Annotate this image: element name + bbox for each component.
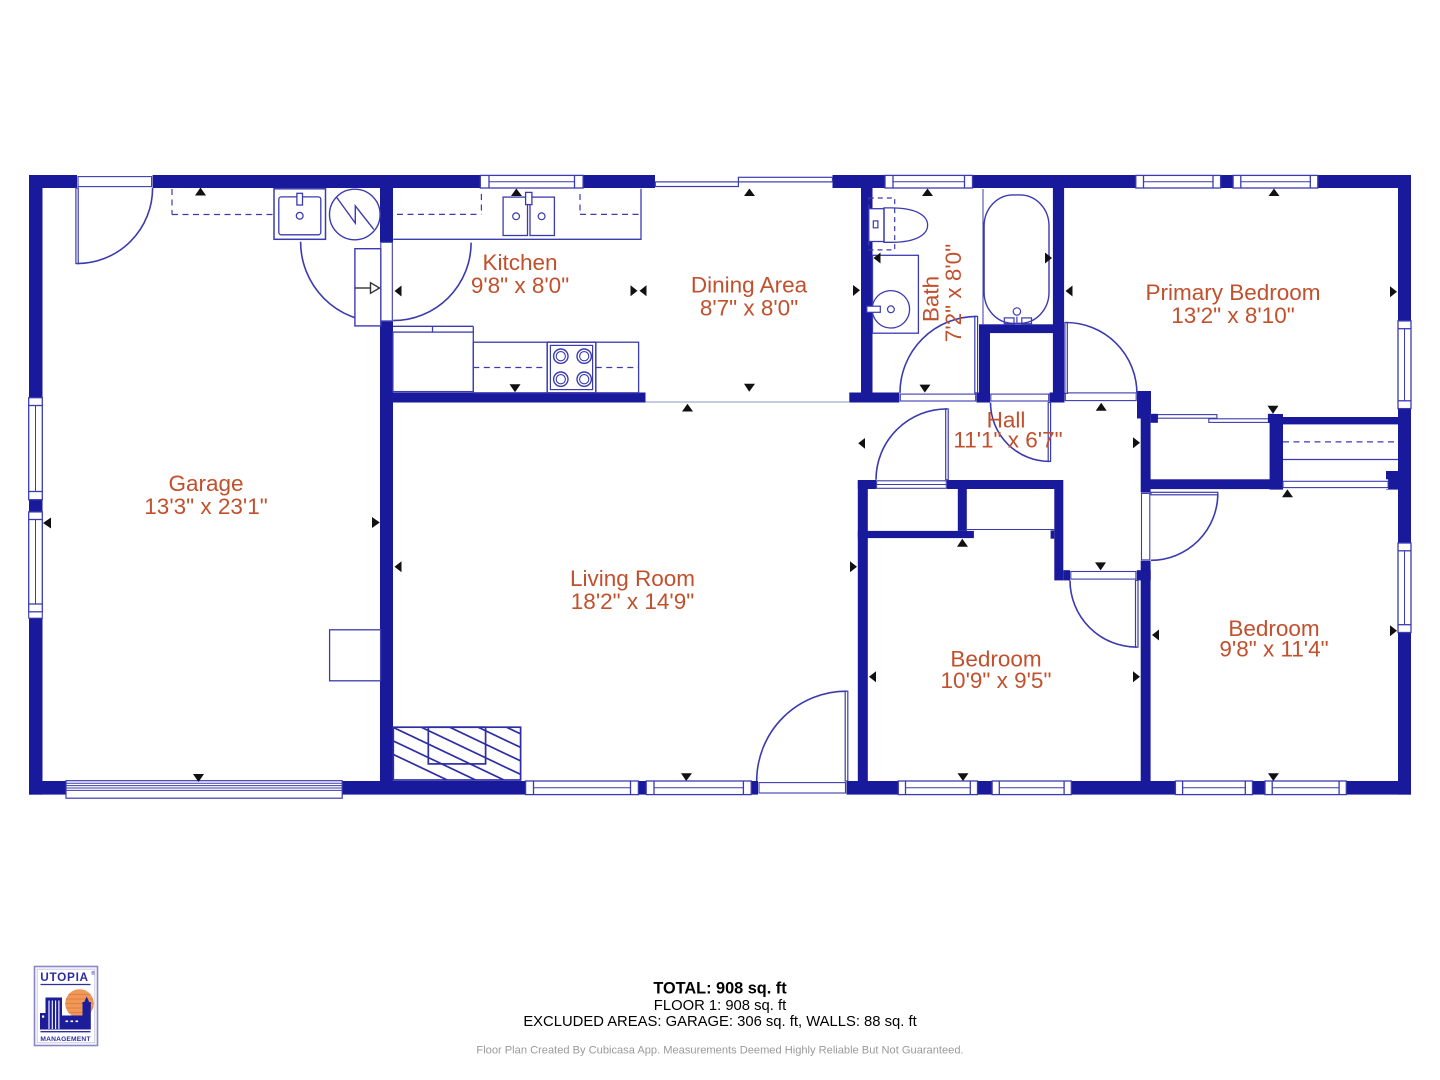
svg-text:13'2" x 8'10": 13'2" x 8'10" [1171,303,1294,328]
svg-text:9'8" x 8'0": 9'8" x 8'0" [471,273,569,298]
svg-text:18'2" x 14'9": 18'2" x 14'9" [571,589,694,614]
svg-text:9'8" x 11'4": 9'8" x 11'4" [1219,637,1328,662]
svg-text:11'1" x 6'7": 11'1" x 6'7" [953,428,1062,453]
svg-text:8'7" x 8'0": 8'7" x 8'0" [700,296,798,321]
svg-text:EXCLUDED AREAS: GARAGE: 306 sq: EXCLUDED AREAS: GARAGE: 306 sq. ft, WALL… [523,1014,916,1030]
svg-text:Kitchen: Kitchen [482,250,557,275]
svg-text:13'3" x 23'1": 13'3" x 23'1" [144,494,267,519]
svg-text:UTOPIA: UTOPIA [40,970,89,984]
svg-text:Bath: Bath [919,276,944,322]
svg-text:Dining Area: Dining Area [691,273,808,298]
svg-text:TOTAL: 908 sq. ft: TOTAL: 908 sq. ft [653,980,787,998]
svg-text:Living Room: Living Room [570,566,695,591]
svg-text:FLOOR 1: 908 sq. ft: FLOOR 1: 908 sq. ft [654,998,786,1014]
svg-text:Garage: Garage [168,471,243,496]
svg-text:Floor Plan Created By Cubicasa: Floor Plan Created By Cubicasa App. Meas… [476,1045,963,1057]
svg-text:10'9" x 9'5": 10'9" x 9'5" [941,668,1052,693]
svg-text:MANAGEMENT: MANAGEMENT [40,1036,91,1043]
svg-text:7'2" x 8'0": 7'2" x 8'0" [941,244,966,342]
svg-text:Primary Bedroom: Primary Bedroom [1145,280,1320,305]
svg-text:®: ® [91,970,95,977]
